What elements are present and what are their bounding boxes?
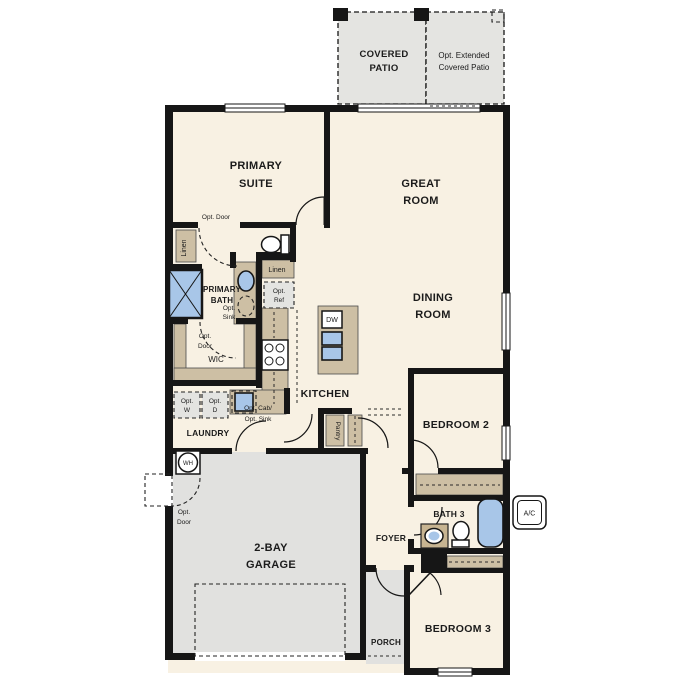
wall-foyer-right [408, 468, 414, 507]
wall-bath3-bottom [408, 548, 505, 554]
primary-toilet [262, 235, 290, 254]
bath3-toilet-tank [452, 540, 469, 547]
wall-garage-bottom [165, 653, 195, 660]
label-opt-ref: Ref [274, 297, 284, 304]
label-wic: WIC [208, 355, 224, 364]
wall [240, 222, 296, 228]
label-wh: WH [183, 461, 193, 467]
patio-post [414, 8, 429, 21]
wall [330, 105, 358, 112]
cooktop [262, 340, 288, 370]
wall-closet-bottom [447, 568, 505, 573]
wall-garage-bottom [345, 653, 362, 660]
label-bedroom3: BEDROOM 3 [425, 623, 491, 635]
label-porch: PORCH [371, 638, 401, 647]
label-opt-cab-sink: Opt. Sink [245, 416, 272, 423]
wall-bedroom3-bottom [404, 668, 438, 675]
label-linen-hall: Linen [268, 267, 285, 274]
label-linen-left: Linen [181, 239, 188, 256]
patio-post [333, 8, 348, 21]
label-primary-suite: PRIMARY [230, 160, 283, 172]
wall-block [421, 554, 447, 573]
opt-ref-box [264, 282, 294, 308]
label-opt-sink: Opt. [223, 305, 235, 312]
toilet-bowl [262, 237, 281, 253]
label-opt-cab-sink: Opt. Cab/ [244, 405, 272, 412]
wall [236, 318, 256, 324]
label-covered-patio: PATIO [369, 63, 398, 74]
label-garage: 2-BAY [254, 542, 288, 554]
label-extended-patio: Opt. Extended [438, 51, 489, 60]
wall [285, 105, 330, 112]
label-primary-suite: SUITE [239, 178, 273, 190]
wall-front [360, 565, 376, 572]
range [262, 340, 288, 370]
wall-suite-divider [324, 112, 330, 224]
label-bath3: BATH 3 [433, 509, 464, 519]
floor-plan-canvas: COVERED PATIO Opt. Extended Covered Pati… [0, 0, 687, 687]
porch-floor [366, 570, 404, 664]
label-dishwasher: DW [326, 317, 338, 324]
label-foyer: FOYER [376, 533, 406, 543]
wall-kitchen-bath [256, 252, 262, 388]
wall [165, 105, 225, 112]
label-opt-door-garage: Opt. [178, 509, 190, 516]
label-opt-door-wic: Door [198, 343, 213, 350]
wall-bedroom2-top [408, 368, 506, 374]
island-sink-basin [322, 347, 342, 360]
label-opt-washer: Opt. [181, 398, 193, 405]
wall-bedroom2-left [408, 368, 414, 468]
label-opt-sink: Sink [223, 314, 236, 321]
wall-right [503, 350, 510, 426]
wall-garage-right [360, 452, 366, 660]
label-pantry: Pantry [334, 422, 341, 442]
wall-pantry [318, 408, 324, 452]
bath3-sink-bowl [429, 532, 440, 541]
label-garage: GARAGE [246, 559, 296, 571]
opt-washer [174, 392, 200, 418]
wall [480, 105, 506, 112]
label-opt-door-suite: Opt. Door [202, 214, 231, 221]
island-sink-basin [322, 332, 342, 345]
hall-linen-shelf [416, 474, 503, 495]
wall-garage-top [266, 448, 368, 454]
opt-dryer [202, 392, 228, 418]
wall-right [503, 460, 510, 675]
opt-refrigerator [264, 282, 294, 308]
wall-wic-laundry [172, 380, 262, 386]
bath3-toilet-bowl [453, 522, 469, 541]
wall-left [165, 105, 173, 660]
shower [169, 270, 202, 318]
label-opt-dryer: Opt. [209, 398, 221, 405]
label-extended-patio: Covered Patio [439, 63, 490, 72]
label-opt-door-garage: Door [177, 519, 192, 526]
floor-plan: COVERED PATIO Opt. Extended Covered Pati… [0, 0, 687, 687]
wall [324, 222, 330, 228]
wall [438, 468, 506, 474]
wic-shelf-bottom [174, 368, 256, 382]
wall [284, 388, 290, 414]
label-dining-room: DINING [413, 292, 453, 304]
label-opt-ref: Opt. [273, 288, 285, 295]
wall-foyer-right [408, 539, 414, 548]
label-primary-bath: BATH [211, 296, 233, 305]
label-bedroom2: BEDROOM 2 [423, 419, 489, 431]
label-laundry: LAUNDRY [187, 428, 230, 438]
label-dining-room: ROOM [415, 309, 450, 321]
label-opt-washer: W [184, 407, 191, 414]
toilet-tank [281, 235, 289, 254]
wall-bedroom3-bottom [472, 668, 506, 675]
label-covered-patio: COVERED [359, 49, 408, 60]
label-great-room: ROOM [403, 195, 438, 207]
label-ac: A/C [524, 511, 536, 518]
wall-porch-right [404, 565, 410, 672]
label-opt-dryer: D [213, 407, 218, 414]
label-kitchen: KITCHEN [301, 388, 350, 400]
bathtub [478, 499, 503, 547]
label-great-room: GREAT [401, 178, 440, 190]
label-opt-door-wic: Opt. [199, 333, 211, 340]
wall-right [503, 105, 510, 293]
label-primary-bath: PRIMARY [203, 285, 241, 294]
wall [172, 222, 198, 228]
